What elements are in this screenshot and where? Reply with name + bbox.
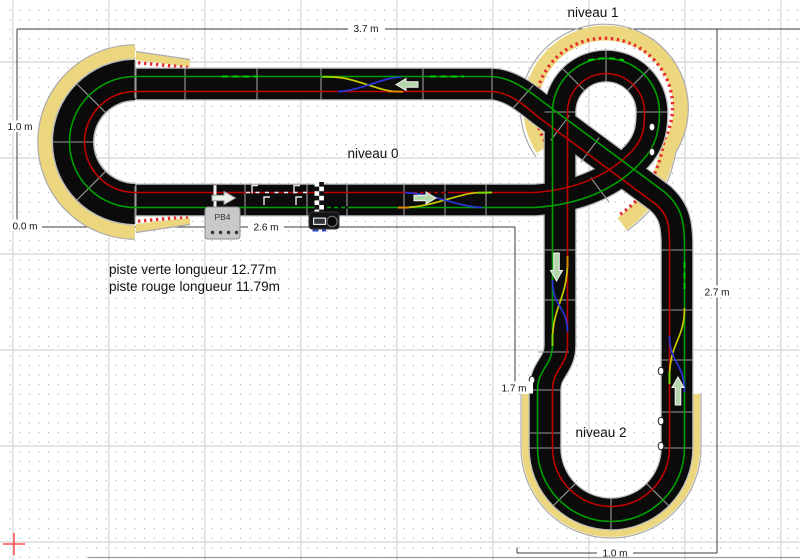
power-base-label: PB4 [214, 212, 230, 222]
lap-counter-button [327, 216, 337, 226]
track-editor-viewport: PB4 3.7 m 1.0 m [0, 0, 800, 560]
lap-counter-unit[interactable] [309, 212, 339, 232]
dim-label-right: 2.7 m [704, 288, 729, 299]
label-niveau1[interactable]: niveau 1 [567, 5, 618, 20]
label-piste-verte[interactable]: piste verte longueur 12.77m [109, 262, 276, 277]
lap-counter-display [314, 219, 325, 224]
dim-label-start: 2.6 m [253, 223, 278, 234]
label-piste-rouge[interactable]: piste rouge longueur 11.79m [109, 279, 280, 294]
lap-counter-led-2 [322, 230, 326, 232]
checkered-sensor-strip [315, 182, 324, 214]
lap-counter-led-1 [313, 230, 319, 232]
label-niveau0[interactable]: niveau 0 [347, 146, 398, 161]
dim-label-left: 1.0 m [7, 122, 32, 133]
label-niveau2[interactable]: niveau 2 [575, 425, 626, 440]
dim-label-origin: 0.0 m [12, 222, 37, 233]
dim-label-top: 3.7 m [353, 24, 378, 35]
power-base-unit[interactable]: PB4 [205, 207, 240, 239]
track-editor-canvas[interactable]: PB4 3.7 m 1.0 m [0, 0, 800, 560]
dim-label-level2: 1.7 m [501, 384, 526, 395]
